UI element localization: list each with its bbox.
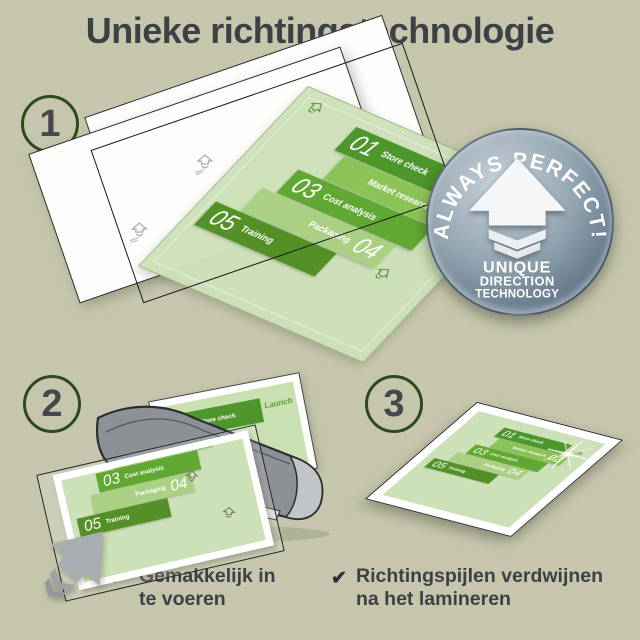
always-perfect-badge: ALWAYS PERFECT! UNIQUE DIRECTION TECHNOL… bbox=[426, 128, 614, 316]
direction-arrow-watermark-icon bbox=[360, 263, 399, 291]
block-05-label: Training bbox=[447, 466, 467, 474]
step-2-number: 2 bbox=[41, 383, 62, 426]
block-04-number: 04 bbox=[504, 467, 524, 477]
badge-graphic: ALWAYS PERFECT! UNIQUE DIRECTION TECHNOL… bbox=[428, 130, 612, 314]
bullet-easy-feed-line2: te voeren bbox=[139, 588, 276, 611]
step-3-badge: 3 bbox=[365, 375, 423, 433]
product-instruction-infographic: Unieke richtingstechnologie 1 Launch 01 … bbox=[0, 0, 640, 640]
step-1-number: 1 bbox=[39, 103, 60, 146]
block-03-label: Cost analysis bbox=[124, 465, 164, 481]
block-04-number: 04 bbox=[347, 235, 387, 263]
bullet-arrows-disappear-line2: na het lamineren bbox=[356, 588, 603, 611]
bullet-arrows-disappear: Richtingspijlen verdwijnen na het lamine… bbox=[356, 565, 603, 611]
block-04-label: Packaging bbox=[135, 484, 167, 498]
block-03-number: 03 bbox=[101, 470, 121, 489]
direction-arrow-watermark-icon bbox=[217, 504, 241, 529]
badge-line-technology: TECHNOLOGY bbox=[475, 288, 559, 300]
direction-arrow-watermark-icon bbox=[180, 467, 204, 492]
bullet-arrows-disappear-line1: Richtingspijlen verdwijnen bbox=[356, 565, 603, 588]
badge-line-direction: DIRECTION bbox=[480, 273, 555, 288]
step-3-number: 3 bbox=[383, 383, 404, 426]
document-surface: Launch 01 Store check 02 Market research… bbox=[382, 411, 605, 528]
checkmark-icon: ✔ bbox=[331, 567, 347, 590]
feed-direction-arrow-icon bbox=[26, 516, 126, 611]
